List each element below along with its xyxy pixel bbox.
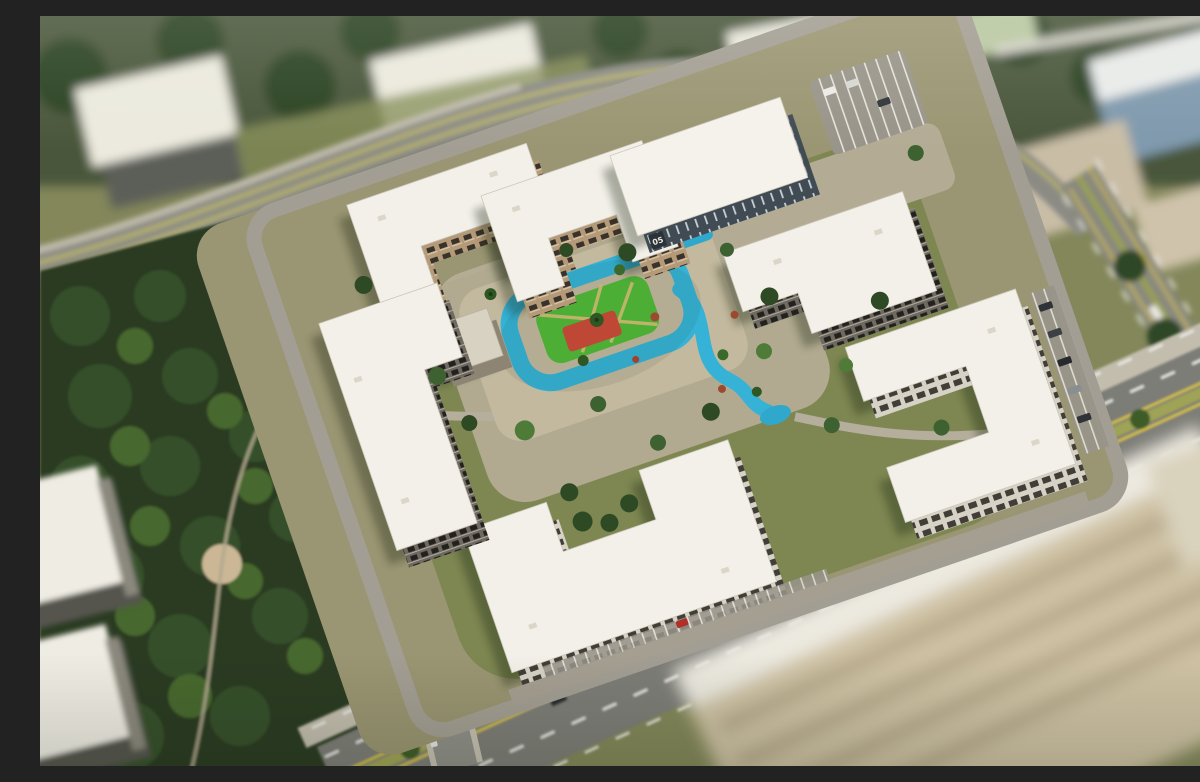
scene-canvas: 05 — [40, 16, 1200, 766]
tilt-shift-vignette — [40, 16, 1200, 766]
aerial-render: 05 — [40, 16, 1200, 766]
